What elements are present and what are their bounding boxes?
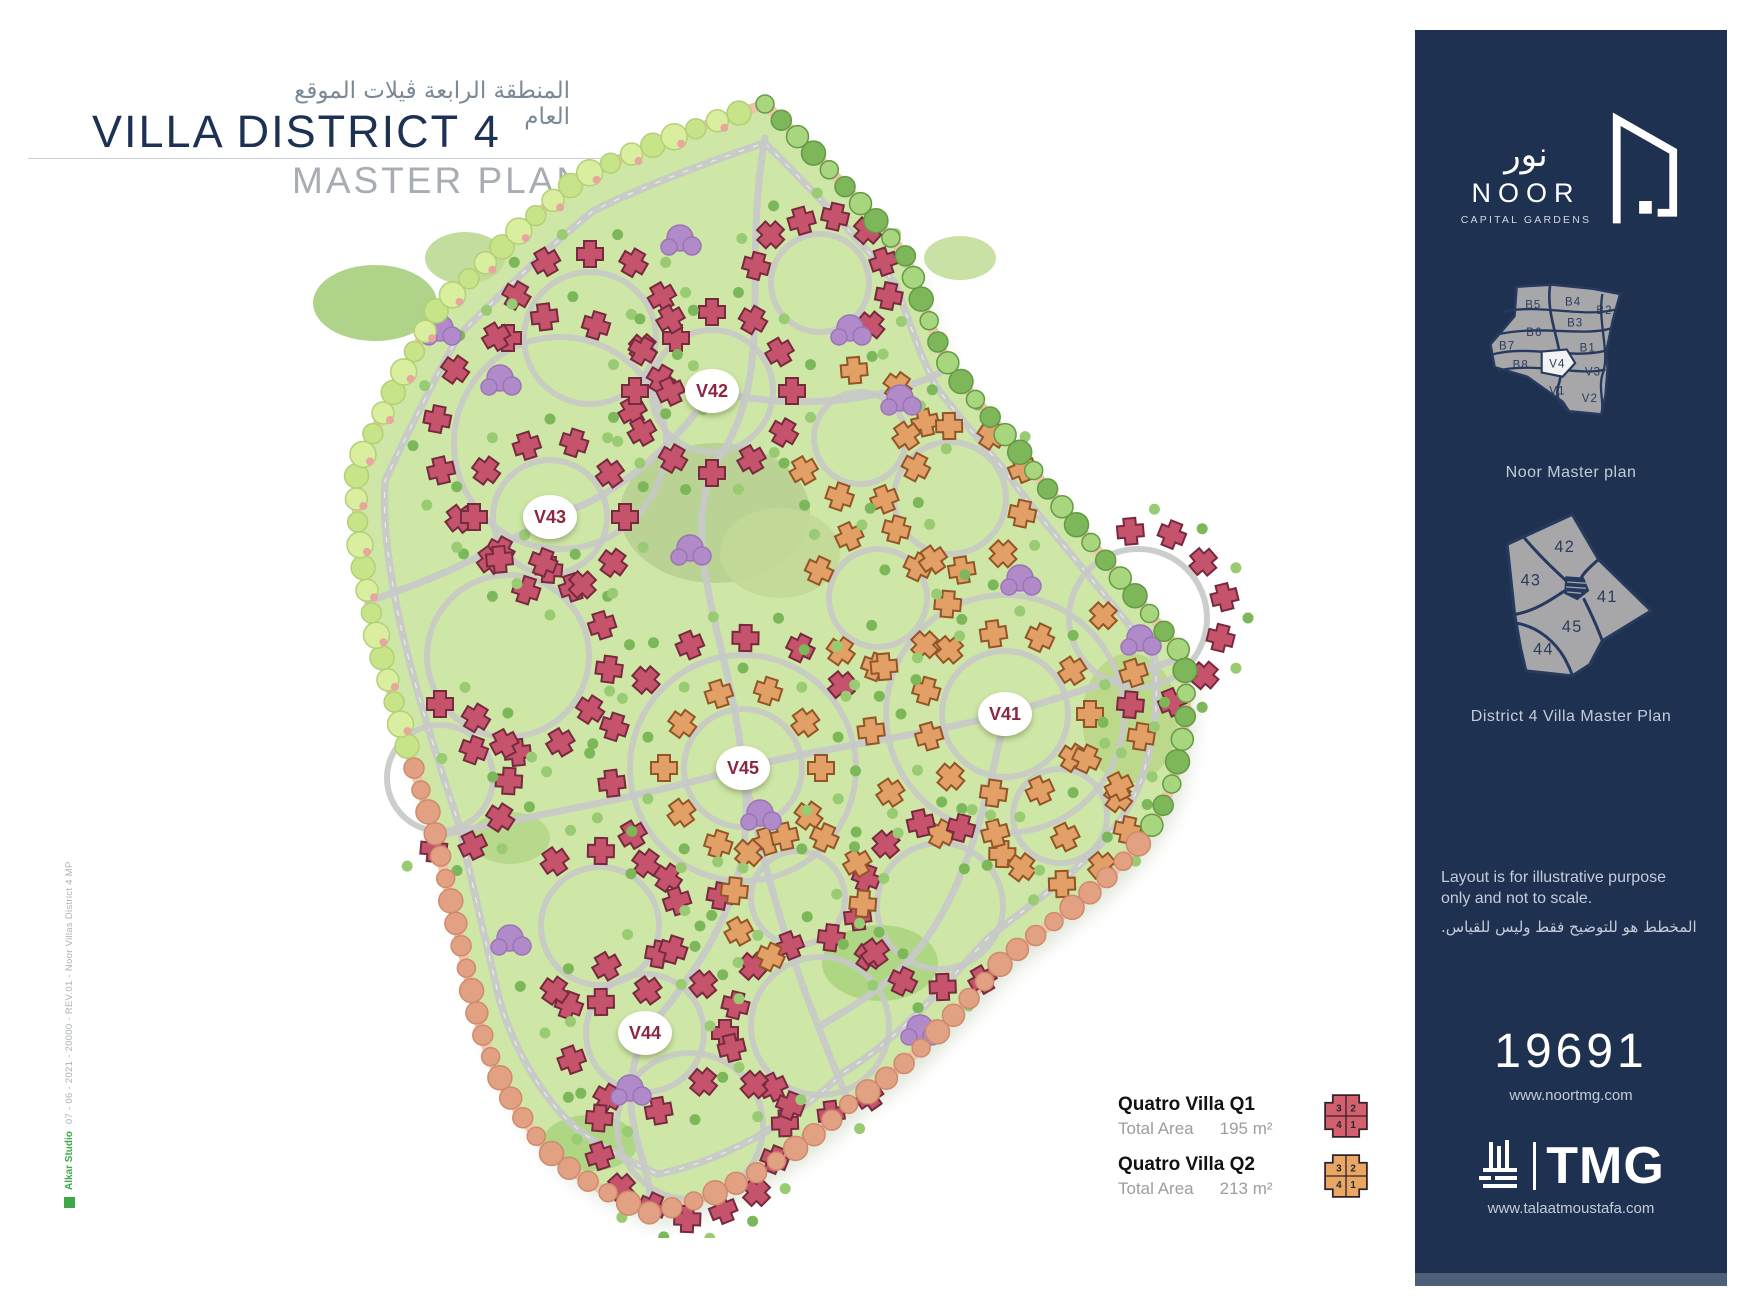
district-4-minimap-caption: District 4 Villa Master Plan <box>1471 708 1671 726</box>
revision-note: 07 - 06 - 2021 - 20000 - REV.01 - Noor V… <box>64 861 75 1124</box>
q1-quadrant-2: 2 <box>1350 1104 1356 1115</box>
zone-label-v45: V45 <box>716 746 770 790</box>
quatro-villa-q1-icon: 3 2 4 1 <box>1324 1094 1368 1138</box>
disclaimer-en-line2: only and not to scale. <box>1441 889 1701 910</box>
noor-website-link[interactable]: www.noortmg.com <box>1509 1087 1632 1104</box>
q2-quadrant-1: 1 <box>1350 1180 1356 1191</box>
q2-quadrant-4: 4 <box>1336 1180 1342 1191</box>
mm1-zone-b8: B8 <box>1513 359 1529 371</box>
legend-q1-area-value: 195 m² <box>1220 1119 1273 1139</box>
mm1-zone-b3: B3 <box>1567 317 1583 329</box>
q1-quadrant-3: 3 <box>1336 1104 1342 1115</box>
poster: المنطقة الرابعة ڤيلات الموقع العام VILLA… <box>0 0 1755 1311</box>
mm2-zone-43: 43 <box>1521 572 1542 590</box>
sidebar-bottom-strip <box>1415 1273 1727 1286</box>
master-plan-map-canvas <box>260 78 1260 1238</box>
project-number: 19691 <box>1494 1024 1647 1079</box>
sidebar: نور NOOR CAPITAL GARDENS B5 B4 B2 B3 B6 <box>1415 30 1727 1286</box>
studio-name: Alkar Studio <box>64 1131 75 1190</box>
zone-label-v43: V43 <box>523 495 577 539</box>
studio-logo-icon <box>64 1197 75 1208</box>
noor-logo-tagline: CAPITAL GARDENS <box>1461 214 1591 226</box>
legend-q1-title: Quatro Villa Q1 <box>1118 1094 1273 1116</box>
disclaimer-arabic: المخطط هو للتوضيح فقط وليس للقياس. <box>1441 918 1701 936</box>
mm1-zone-b4: B4 <box>1565 297 1581 309</box>
noor-logo-name: NOOR <box>1461 178 1591 209</box>
district-4-minimap: 42 43 41 45 44 <box>1445 508 1697 696</box>
legend-q1-area-label: Total Area <box>1118 1119 1194 1139</box>
noor-logo: نور NOOR CAPITAL GARDENS <box>1461 104 1681 226</box>
q2-quadrant-2: 2 <box>1350 1164 1356 1175</box>
tmg-name: TMG <box>1546 1140 1665 1192</box>
legend-q2-title: Quatro Villa Q2 <box>1118 1154 1273 1176</box>
q1-quadrant-4: 4 <box>1336 1120 1342 1131</box>
disclaimer: Layout is for illustrative purpose only … <box>1415 868 1727 936</box>
mm1-zone-v4: V4 <box>1549 358 1565 370</box>
mm1-zone-v1: V1 <box>1549 386 1565 398</box>
mm2-zone-45: 45 <box>1562 618 1583 636</box>
zone-label-v41: V41 <box>978 692 1032 736</box>
mm1-zone-v3: V3 <box>1585 367 1601 379</box>
q2-quadrant-3: 3 <box>1336 1164 1342 1175</box>
mm2-zone-44: 44 <box>1533 641 1554 659</box>
quatro-villa-q2-icon: 3 2 4 1 <box>1324 1154 1368 1198</box>
mm1-zone-b5: B5 <box>1525 300 1541 312</box>
mm2-zone-41: 41 <box>1597 588 1618 606</box>
noor-master-plan-caption: Noor Master plan <box>1506 464 1637 482</box>
noor-building-icon <box>1607 104 1681 226</box>
legend-item-q1: Quatro Villa Q1 Total Area 195 m² 3 2 4 … <box>1118 1094 1368 1139</box>
zone-label-v44: V44 <box>618 1011 672 1055</box>
noor-master-plan-minimap: B5 B4 B2 B3 B6 B7 B1 B8 V4 V3 V1 V2 <box>1445 272 1697 450</box>
mm1-zone-v2: V2 <box>1582 393 1598 405</box>
disclaimer-en-line1: Layout is for illustrative purpose <box>1441 868 1701 889</box>
legend-q2-area-value: 213 m² <box>1220 1179 1273 1199</box>
mm1-zone-b1: B1 <box>1580 343 1596 355</box>
side-credit: Alkar Studio 07 - 06 - 2021 - 20000 - RE… <box>64 872 75 1208</box>
tmg-divider <box>1533 1142 1536 1190</box>
legend-q2-area-label: Total Area <box>1118 1179 1194 1199</box>
tmg-seal-icon <box>1477 1138 1523 1194</box>
tmg-website-link[interactable]: www.talaatmoustafa.com <box>1488 1200 1655 1217</box>
mm2-zone-42: 42 <box>1554 538 1575 556</box>
mm1-zone-b2: B2 <box>1596 305 1612 317</box>
mm1-zone-b7: B7 <box>1499 340 1515 352</box>
zone-label-v42: V42 <box>685 369 739 413</box>
noor-logo-arabic: نور <box>1461 138 1591 172</box>
mm1-zone-b6: B6 <box>1526 327 1542 339</box>
q1-quadrant-1: 1 <box>1350 1120 1356 1131</box>
legend-item-q2: Quatro Villa Q2 Total Area 213 m² 3 2 4 … <box>1118 1154 1368 1199</box>
master-plan-map: V42 V43 V41 V45 V44 <box>260 78 1260 1238</box>
tmg-logo: TMG <box>1477 1138 1665 1194</box>
